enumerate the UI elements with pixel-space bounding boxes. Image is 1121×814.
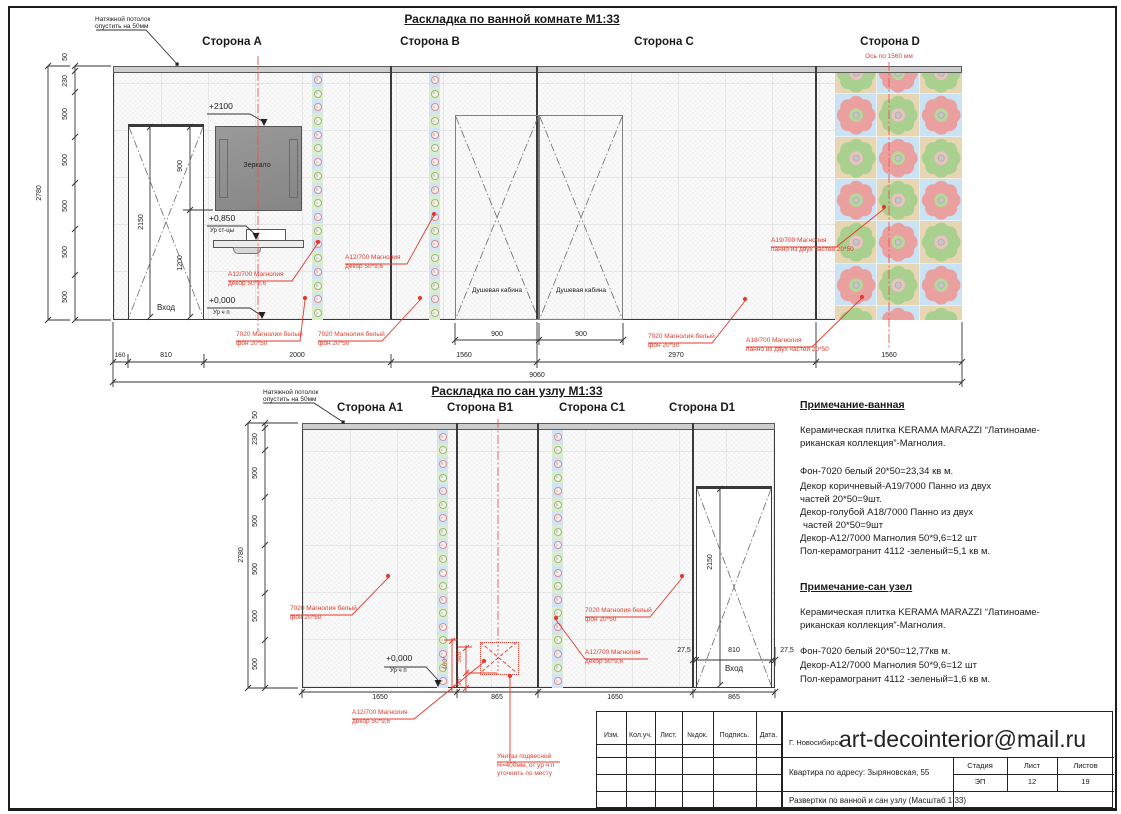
tb-meta-head: Лист (1007, 762, 1057, 771)
dim-label: 27,5 (664, 647, 704, 655)
strip-tile-pink (552, 620, 563, 634)
rosette-icon (314, 268, 322, 276)
bath-wall-separator (815, 66, 817, 320)
notes-line: Декор-А12/7000 Магнолия 50*9,6=12 шт (800, 534, 977, 545)
strip-tile-pink (437, 539, 448, 553)
strip-tile-pink (552, 457, 563, 471)
title-block: Изм. Кол.уч. Лист. №док. Подпись. Дата. … (596, 711, 1113, 808)
strip-tile-pink (437, 620, 448, 634)
rosette-icon (431, 227, 439, 235)
annotation-7020: 7020 Магнолия белыйфон 20*50 (585, 607, 652, 624)
rosette-icon (554, 514, 562, 522)
tb-col: Изм. (597, 732, 626, 740)
rosette-icon (554, 596, 562, 604)
strip-tile-green (312, 87, 323, 101)
rosette-icon (431, 309, 439, 317)
rosette-icon (439, 514, 447, 522)
strip-tile-green (437, 525, 448, 539)
strip-tile-pink (312, 265, 323, 279)
rosette-icon (431, 172, 439, 180)
rosette-icon (439, 623, 447, 631)
mirror-label: Зеркало (217, 162, 297, 170)
rosette-icon (314, 158, 322, 166)
rosette-icon (431, 199, 439, 207)
rosette-icon (314, 131, 322, 139)
panel-tile-pink-flower (877, 221, 919, 263)
tb-meta-head: Листов (1057, 762, 1114, 771)
wc-wall-separator (537, 423, 539, 688)
level-0: +0,000 (386, 654, 412, 664)
decor-strip (552, 430, 563, 688)
level-850: +0,850 (209, 214, 235, 224)
strip-tile-green (552, 634, 563, 648)
tb-col: Подпись. (713, 732, 756, 740)
side-label-b1: Сторона В1 (430, 402, 530, 415)
panel-tile-pink-flower (920, 264, 962, 306)
strip-tile-pink (429, 210, 440, 224)
rosette-icon (314, 186, 322, 194)
strip-tile-green (429, 306, 440, 320)
ceiling-note: Натяжной потолок опустить на 50мм (95, 16, 150, 31)
level-850-ref: Ур ст-цы (210, 228, 234, 235)
rosette-icon (439, 460, 447, 468)
rosette-icon (431, 144, 439, 152)
dim-label: 160 (105, 352, 135, 359)
strip-tile-pink (312, 210, 323, 224)
rosette-icon (314, 240, 322, 248)
strip-tile-green (312, 169, 323, 183)
dim-label: 9060 (517, 372, 557, 380)
sink (233, 247, 261, 254)
strip-tile-green (312, 114, 323, 128)
strip-tile-pink (552, 539, 563, 553)
strip-tile-pink (429, 73, 440, 87)
strip-tile-pink (429, 238, 440, 252)
strip-tile-green (552, 471, 563, 485)
bath-wall-separator (390, 66, 392, 320)
rosette-icon (554, 433, 562, 441)
strip-tile-green (429, 251, 440, 265)
rosette-icon (554, 582, 562, 590)
panel-tile-green-flower (835, 137, 877, 179)
rosette-icon (314, 90, 322, 98)
tb-meta-val: 12 (1007, 778, 1057, 787)
annotation-a19: А19/700 Магнолияпанно из двух частей 20*… (771, 237, 854, 254)
rosette-icon (314, 103, 322, 111)
dim-label: 865 (477, 694, 517, 702)
level-0-ref: Ур ч п (390, 668, 407, 675)
strip-tile-pink (312, 238, 323, 252)
rosette-icon (431, 76, 439, 84)
annotation-a12: А12/700 Магнолиядекор 50*9,6 (228, 271, 284, 288)
dim-label: 500 (61, 94, 71, 134)
strip-tile-pink (552, 430, 563, 444)
panel-tile-green-flower (877, 94, 919, 136)
tb-meta-val: 19 (1057, 778, 1114, 787)
notes-line: Пол-керамогранит 4112 -зеленый=5,1 кв м. (800, 547, 990, 558)
annotation-a12: А12/700 Магнолиядекор 50*9,6 (345, 254, 401, 271)
annotation-7020: 7020 Магнолия белыйфон 20*50 (648, 333, 715, 350)
tb-col: Лист. (655, 732, 682, 740)
strip-tile-pink (437, 566, 448, 580)
panel-tile-green-flower (877, 264, 919, 306)
rosette-icon (314, 117, 322, 125)
ceiling-note: Натяжной потолок опустить на 50мм (263, 389, 318, 404)
panel-tile-green-flower (877, 179, 919, 221)
panel-tile-green-flower (835, 306, 877, 320)
strip-tile-green (437, 607, 448, 621)
tb-email: art-decointerior@mail.ru (839, 726, 1086, 752)
rosette-icon (431, 254, 439, 262)
rosette-icon (554, 487, 562, 495)
strip-tile-green (429, 114, 440, 128)
annotation-a12: А12/700 Магнолиядекор 50*9,6 (585, 649, 641, 666)
strip-tile-pink (552, 484, 563, 498)
strip-tile-pink (437, 457, 448, 471)
dim-label: 500 (251, 501, 261, 541)
rosette-icon (554, 446, 562, 454)
dim-label: 2150 (137, 202, 147, 242)
strip-tile-pink (437, 593, 448, 607)
dim-label: 2970 (656, 352, 696, 360)
side-label-d: Сторона D (830, 36, 950, 49)
side-label-c: Сторона С (604, 36, 724, 49)
strip-tile-pink (429, 100, 440, 114)
rosette-icon (314, 282, 322, 290)
annotation-7020: 7020 Магнолия белыйфон 20*50 (236, 331, 303, 348)
panel-tile-green-flower (920, 221, 962, 263)
strip-tile-green (552, 444, 563, 458)
notes-line: Декор-голубой А18/7000 Панно из двух (800, 508, 973, 519)
dim-label: 900 (176, 146, 186, 186)
strip-tile-green (312, 251, 323, 265)
strip-tile-green (437, 579, 448, 593)
annotation-a18: А18/700 Магнолияпанно из двух частей 20*… (746, 337, 829, 354)
rosette-icon (554, 636, 562, 644)
panel-tile-pink-flower (920, 179, 962, 221)
rosette-icon (431, 282, 439, 290)
rosette-icon (431, 131, 439, 139)
dim-label: 1650 (595, 694, 635, 702)
wc-door (696, 486, 772, 688)
dim-label: 810 (146, 352, 186, 360)
dim-label: 500 (251, 549, 261, 589)
strip-tile-green (437, 552, 448, 566)
strip-tile-green (312, 142, 323, 156)
annotation-7020: 7020 Магнолия белыйфон 20*50 (290, 605, 357, 622)
dim-label: 1650 (360, 694, 400, 702)
strip-tile-green (437, 444, 448, 458)
rosette-icon (314, 254, 322, 262)
panel-tile-pink-flower (835, 179, 877, 221)
rosette-icon (439, 528, 447, 536)
panel-tile-green-flower (920, 73, 962, 94)
strip-tile-green (312, 224, 323, 238)
strip-tile-green (429, 87, 440, 101)
annotation-a12: А12/700 Магнолиядекор 50*9,6 (352, 709, 408, 726)
dim-label: 500 (61, 186, 71, 226)
strip-tile-green (429, 196, 440, 210)
strip-tile-pink (437, 484, 448, 498)
strip-tile-green (552, 579, 563, 593)
panel-tile-pink-flower (877, 137, 919, 179)
rosette-icon (554, 569, 562, 577)
notes-line: риканская коллекция”-Магнолия. (800, 621, 945, 632)
notes-wc-heading: Примечание-сан узел (800, 581, 912, 593)
rosette-icon (554, 609, 562, 617)
toilet-outline (480, 642, 519, 675)
dim-label-red: 400* (441, 643, 451, 683)
rosette-icon (314, 199, 322, 207)
tb-meta-val: ЭП (953, 778, 1007, 787)
dim-label: 500 (251, 453, 261, 493)
dim-label: 500 (251, 644, 261, 684)
rosette-icon (554, 623, 562, 631)
tb-doc-title: Развертки по ванной и сан узлу (Масштаб … (789, 796, 966, 805)
dim-label: 2150 (706, 542, 716, 582)
dim-label: 500 (61, 140, 71, 180)
decor-strip (429, 73, 440, 320)
rosette-icon (554, 474, 562, 482)
side-label-a: Сторона А (172, 36, 292, 49)
rosette-icon (431, 213, 439, 221)
strip-tile-green (312, 196, 323, 210)
panel-tile-green-flower (920, 306, 962, 320)
panel-tile-green-flower (920, 137, 962, 179)
dim-label: 500 (61, 232, 71, 272)
rosette-icon (554, 541, 562, 549)
dim-label: 1200 (176, 243, 186, 283)
rosette-icon (439, 433, 447, 441)
rosette-icon (554, 528, 562, 536)
strip-tile-green (312, 306, 323, 320)
rosette-icon (431, 117, 439, 125)
strip-tile-pink (437, 430, 448, 444)
rosette-icon (439, 541, 447, 549)
strip-tile-pink (552, 593, 563, 607)
strip-tile-pink (437, 511, 448, 525)
rosette-icon (554, 677, 562, 685)
rosette-icon (554, 664, 562, 672)
rosette-icon (439, 569, 447, 577)
strip-tile-green (429, 279, 440, 293)
annotation-toilet: Унитаз подвесной Н=400мм, от ур ч п уточ… (497, 753, 554, 779)
dim-label: 900 (477, 331, 517, 339)
side-label-a1: Сторона А1 (320, 402, 420, 415)
annotation-7020: 7020 Магнолия белыйфон 20*50 (318, 331, 385, 348)
strip-tile-green (312, 279, 323, 293)
rosette-icon (314, 213, 322, 221)
rosette-icon (431, 158, 439, 166)
rosette-icon (431, 240, 439, 248)
notes-line: частей 20*50=9шт. (800, 495, 882, 506)
panel-tile-pink-flower (835, 264, 877, 306)
panel-tile-pink-flower (877, 73, 919, 94)
panel-tile-pink-flower (835, 94, 877, 136)
wc-title: Раскладка по сан узлу М1:33 (377, 385, 657, 399)
shower-label: Душевая кабина (457, 287, 537, 294)
strip-tile-green (552, 552, 563, 566)
strip-tile-pink (552, 511, 563, 525)
strip-tile-pink (429, 265, 440, 279)
strip-tile-pink (312, 155, 323, 169)
tb-meta-head: Стадия (953, 762, 1007, 771)
dim-label: 865 (714, 694, 754, 702)
dim-label-red: 95* (455, 661, 465, 701)
strip-tile-pink (312, 128, 323, 142)
notes-line: Декор коричневый-А19/7000 Панно из двух (800, 482, 991, 493)
dim-label: 2000 (277, 352, 317, 360)
panel-tile-pink-flower (920, 94, 962, 136)
strip-tile-pink (552, 566, 563, 580)
rosette-icon (439, 474, 447, 482)
rosette-icon (431, 103, 439, 111)
strip-tile-green (429, 224, 440, 238)
panel-tile-pink-flower (877, 306, 919, 320)
strip-tile-pink (312, 100, 323, 114)
strip-tile-green (437, 498, 448, 512)
rosette-icon (554, 650, 562, 658)
rosette-icon (439, 582, 447, 590)
shower-label: Душевая кабина (541, 287, 621, 294)
side-label-d1: Сторона D1 (652, 402, 752, 415)
strip-tile-pink (312, 73, 323, 87)
rosette-icon (439, 596, 447, 604)
axis-note: Ось по 1560 мм (844, 53, 934, 60)
notes-bath-heading: Примечание-ванная (800, 399, 905, 411)
notes-line: риканская коллекция”-Магнолия. (800, 439, 945, 450)
strip-tile-green (437, 471, 448, 485)
side-label-b: Сторона В (370, 36, 490, 49)
rosette-icon (314, 295, 322, 303)
rosette-icon (431, 268, 439, 276)
dim-label: 500 (251, 596, 261, 636)
level-0-ref: Ур ч п (213, 310, 230, 317)
strip-tile-pink (312, 183, 323, 197)
bath-title: Раскладка по ванной комнате М1:33 (362, 13, 662, 27)
tb-col: Кол.уч. (626, 732, 655, 740)
rosette-icon (554, 501, 562, 509)
rosette-icon (431, 295, 439, 303)
strip-tile-pink (429, 155, 440, 169)
rosette-icon (314, 172, 322, 180)
rosette-icon (439, 609, 447, 617)
notes-line: Керамическая плитка KERAMA MARAZZI “Лати… (800, 608, 1040, 619)
dim-label: 1560 (869, 352, 909, 360)
notes-line: Керамическая плитка KERAMA MARAZZI “Лати… (800, 426, 1040, 437)
entrance-label: Вход (146, 303, 186, 312)
rosette-icon (554, 555, 562, 563)
rosette-icon (439, 555, 447, 563)
tb-address: Квартира по адресу: Зыряновская, 55 (789, 768, 929, 777)
rosette-icon (439, 487, 447, 495)
strip-tile-green (552, 498, 563, 512)
dim-label: 810 (714, 647, 754, 655)
dim-label: 1560 (444, 352, 484, 360)
notes-line: Пол-керамогранит 4112 -зеленый=1,6 кв м. (800, 675, 990, 686)
level-0: +0,000 (209, 296, 235, 306)
side-label-c1: Сторона С1 (542, 402, 642, 415)
drawing-sheet: Раскладка по ванной комнате М1:33 Сторон… (0, 0, 1121, 814)
strip-tile-green (429, 169, 440, 183)
strip-tile-green (552, 607, 563, 621)
rosette-icon (314, 76, 322, 84)
dim-label: 500 (61, 277, 71, 317)
flower-panel (835, 73, 962, 320)
strip-tile-pink (429, 128, 440, 142)
dim-label: 2780 (35, 173, 45, 213)
entrance-label: Вход (714, 664, 754, 673)
notes-line: частей 20*50=9шт (803, 521, 883, 532)
panel-tile-green-flower (835, 73, 877, 94)
rosette-icon (554, 460, 562, 468)
dim-label: 2780 (237, 535, 247, 575)
rosette-icon (439, 446, 447, 454)
rosette-icon (314, 309, 322, 317)
tb-city: Г. Новосибирск (789, 739, 842, 748)
rosette-icon (431, 90, 439, 98)
strip-tile-pink (312, 293, 323, 307)
strip-tile-pink (429, 183, 440, 197)
notes-line: Фон-7020 белый 20*50=12,77кв м. (800, 647, 950, 658)
rosette-icon (431, 186, 439, 194)
strip-tile-pink (429, 293, 440, 307)
strip-tile-green (552, 661, 563, 675)
tb-col: №док. (682, 732, 713, 740)
rosette-icon (314, 227, 322, 235)
notes-line: Фон-7020 белый 20*50=23,34 кв м. (800, 467, 953, 478)
strip-tile-green (552, 525, 563, 539)
strip-tile-green (429, 142, 440, 156)
rosette-icon (314, 144, 322, 152)
decor-strip (312, 73, 323, 320)
dim-label: 900 (561, 331, 601, 339)
rosette-icon (439, 501, 447, 509)
level-2100: +2100 (209, 102, 233, 112)
strip-tile-pink (552, 674, 563, 688)
strip-tile-pink (552, 647, 563, 661)
notes-line: Декор-А12/7000 Магнолия 50*9,6=12 шт (800, 661, 977, 672)
tb-col: Дата. (756, 732, 781, 740)
